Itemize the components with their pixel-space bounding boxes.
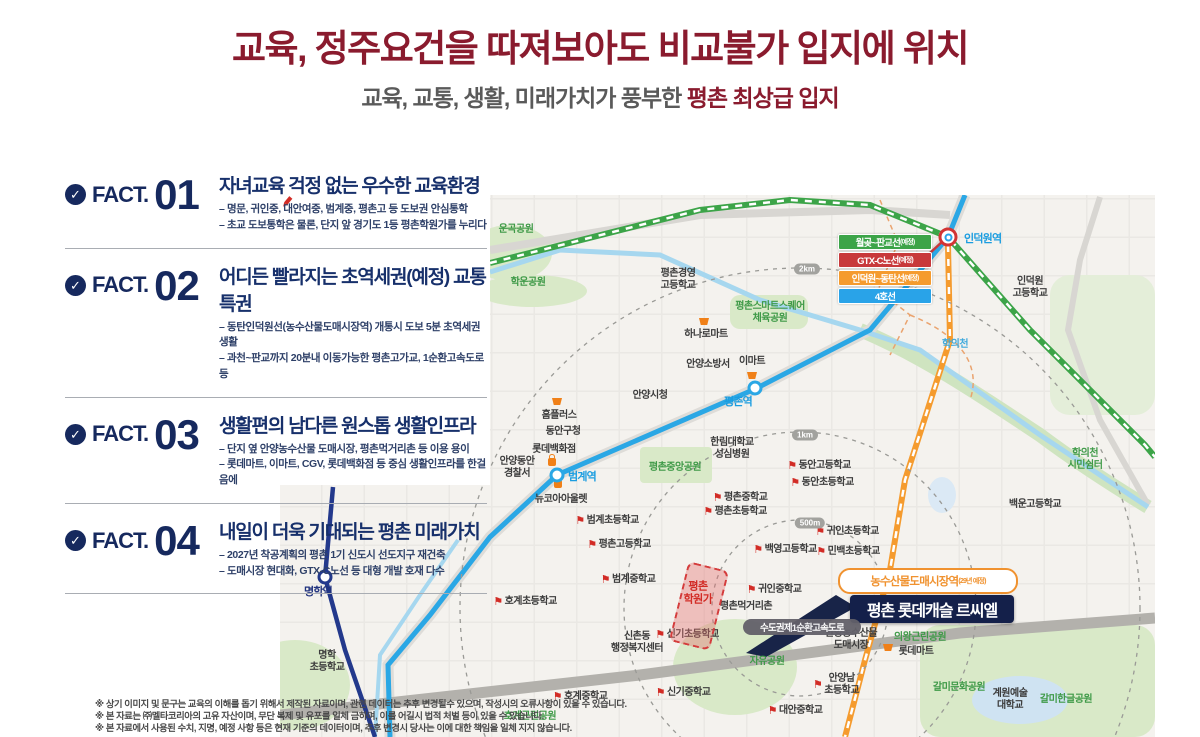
map-label-text: 자유공원 [750, 656, 785, 668]
fact-body-03: 생활편의 남다른 원스톱 생활인프라– 단지 옆 안양농수산물 도매시장, 평촌… [219, 411, 487, 489]
station-label: 인덕원역 [964, 230, 1001, 246]
map-label: 동안구청 [546, 426, 581, 438]
check-icon: ✓ [65, 275, 86, 296]
check-icon: ✓ [65, 184, 86, 205]
map-label-text: 신기중학교 [667, 687, 711, 699]
map-label-school: ⚑대안중학교 [768, 705, 823, 717]
fact-number: 01 [154, 177, 199, 213]
fact-heading-03: ✓FACT.03 [65, 411, 207, 453]
page-title: 교육, 정주요건을 따져보아도 비교불가 입지에 위치 [0, 28, 1200, 71]
fact-body-04: 내일이 더욱 기대되는 평촌 미래가치– 2027년 착공계획의 평촌 1기 신… [219, 517, 480, 580]
map-label-text: 안양시청 [633, 390, 668, 402]
disclaimer-block: ※ 상기 이미지 및 문구는 교육의 이해를 돕기 위해서 제작된 자료이며, … [95, 698, 627, 734]
legend-label: 4호선 [875, 289, 895, 303]
map-label: 이마트 [739, 356, 765, 368]
map-label-school: ⚑신기중학교 [656, 687, 711, 699]
legend-badge-3: 인덕원~동탄선(예정) [838, 270, 932, 286]
map-label: 안양소방서 [686, 359, 730, 371]
map-label: 운곡공원 [499, 224, 534, 236]
map-label: 학의천 시민쉼터 [1068, 448, 1103, 472]
school-flag-icon: ⚑ [747, 585, 756, 596]
fact-row-04: ✓FACT.04내일이 더욱 기대되는 평촌 미래가치– 2027년 착공계획의… [65, 504, 487, 595]
fact-title: 자녀교육 걱정 없는 우수한 교육환경 [219, 171, 487, 198]
school-flag-icon: ⚑ [493, 597, 502, 608]
school-flag-icon: ⚑ [713, 493, 722, 504]
school-flag-icon: ⚑ [656, 688, 665, 699]
map-label-text: 평촌중학교 [724, 492, 768, 504]
planned-station-name: 농수산물도매시장역 [870, 573, 958, 589]
map-label-school: ⚑귀인중학교 [747, 584, 802, 596]
disclaimer-line: ※ 상기 이미지 및 문구는 교육의 이해를 돕기 위해서 제작된 자료이며, … [95, 698, 627, 710]
fact-bullet: – 롯데마트, 이마트, CGV, 롯데백화점 등 중심 생활인프라를 한걸음에 [219, 457, 487, 489]
ring-badge-500m: 500m [795, 518, 825, 529]
map-label-school: ⚑민백초등학교 [816, 546, 880, 558]
map-label-school: ⚑동안초등학교 [790, 477, 854, 489]
school-flag-icon: ⚑ [768, 706, 777, 717]
map-label-text: 평촌먹거리촌 [720, 601, 772, 613]
map-label-text: 안양동안 경찰서 [500, 456, 535, 480]
fact-number: 03 [154, 417, 199, 453]
map-label-text: 동안초등학교 [802, 477, 854, 489]
map-label-text: 학의천 [942, 339, 968, 351]
fact-title: 어디든 빨라지는 초역세권(예정) 교통특권 [219, 262, 487, 316]
highway-badge: 수도권제1순환고속도로 [743, 619, 861, 635]
fact-word: FACT. [92, 182, 148, 208]
map-label-text: 동안구청 [546, 426, 581, 438]
map-label-text: 이마트 [739, 356, 765, 368]
map-label-text: 한림대학교 성심병원 [710, 437, 754, 461]
map-label: 계원예술 대학교 [993, 688, 1028, 712]
planned-station-note: (29년 예정) [958, 576, 985, 586]
fact-word: FACT. [92, 528, 148, 554]
fact-row-03: ✓FACT.03생활편의 남다른 원스톱 생활인프라– 단지 옆 안양농수산물 … [65, 398, 487, 504]
bag-icon [548, 458, 556, 466]
fact-title: 내일이 더욱 기대되는 평촌 미래가치 [219, 517, 480, 544]
fact-bullet: – 초교 도보통학은 물론, 단지 앞 경기도 1등 평촌학원가를 누리다 [219, 218, 487, 234]
school-flag-icon: ⚑ [813, 680, 822, 691]
map-label-school: ⚑백영고등학교 [753, 544, 817, 556]
fact-bullet: – 도매시장 현대화, GTX-C노선 등 대형 개발 호재 다수 [219, 564, 480, 580]
map-label-text: 귀인중학교 [758, 584, 802, 596]
map-label: 안양시청 [633, 390, 668, 402]
map-label-school: ⚑평촌고등학교 [587, 539, 651, 551]
map-label: 홈플러스 [542, 410, 577, 422]
subtitle-strong: 평촌 최상급 입지 [687, 85, 839, 111]
legend-badge-4: 4호선 [838, 288, 932, 304]
map-label-text: 평촌초등학교 [715, 506, 767, 518]
legend-label: GTX-C노선 [857, 253, 898, 267]
fact-heading-01: ✓FACT.01 [65, 171, 207, 213]
map-label-school: ⚑평촌중학교 [713, 492, 768, 504]
fact-number: 02 [154, 268, 199, 304]
legend-note: (예정) [899, 255, 913, 265]
fact-heading-02: ✓FACT.02 [65, 262, 207, 304]
school-flag-icon: ⚑ [703, 507, 712, 518]
map-label: 학운공원 [511, 277, 546, 289]
cart-icon [552, 398, 562, 405]
map-label-text: 홈플러스 [542, 410, 577, 422]
fact-bullet: – 명문, 귀인중, 대안여중, 범계중, 평촌고 등 도보권 안심통학 [219, 202, 487, 218]
cart-icon [883, 644, 893, 651]
fact-bullet: – 단지 옆 안양농수산물 도매시장, 평촌먹거리촌 등 이용 용이 [219, 442, 487, 458]
map-label-text: 명학 초등학교 [310, 650, 345, 674]
map-label: 백운고등학교 [1009, 499, 1061, 511]
map-label-text: 평촌고등학교 [599, 539, 651, 551]
map-label-text: 민백초등학교 [828, 546, 880, 558]
map-label-text: 평촌중앙공원 [649, 462, 701, 474]
fact-bullet: – 과천~판교까지 20분내 이동가능한 평촌고가교, 1순환고속도로 등 [219, 351, 487, 383]
fact-bullet: – 2027년 착공계획의 평촌 1기 신도시 선도지구 재건축 [219, 548, 480, 564]
rail-legend: 월곶~판교선(예정)GTX-C노선(예정)인덕원~동탄선(예정)4호선 [838, 234, 932, 304]
map-label-school: ⚑범계초등학교 [575, 515, 639, 527]
map-label-text: 범계중학교 [612, 574, 656, 586]
transfer-inner-ring [944, 233, 952, 241]
map-label: 한림대학교 성심병원 [710, 437, 754, 461]
map-label-text: 범계초등학교 [587, 515, 639, 527]
map-label: 갈미문화공원 [933, 682, 985, 694]
fact-number: 04 [154, 523, 199, 559]
map-label-text: 뉴코아아울렛 [535, 494, 587, 506]
fact-heading-04: ✓FACT.04 [65, 517, 207, 559]
map-label: 의왕근린공원 [894, 632, 946, 644]
academy-district-label: 평촌 학원가 [684, 580, 713, 605]
fact-body-02: 어디든 빨라지는 초역세권(예정) 교통특권– 동탄인덕원선(농수산물도매시장역… [219, 262, 487, 383]
map-label-text: 학운공원 [511, 277, 546, 289]
map-label: 롯데마트 [899, 646, 934, 658]
map-label: 평촌스마트스퀘어 체육공원 [735, 301, 805, 325]
school-flag-icon: ⚑ [787, 461, 796, 472]
map-label-school: ⚑안양남 초등학교 [813, 673, 859, 697]
map-label-text: 학의천 시민쉼터 [1068, 448, 1103, 472]
legend-badge-1: 월곶~판교선(예정) [838, 234, 932, 250]
ring-badge-2km: 2km [794, 264, 820, 275]
map-label-text: 평촌경영 고등학교 [661, 268, 696, 292]
map-label: 자유공원 [750, 656, 785, 668]
station-label: 범계역 [568, 468, 596, 484]
school-flag-icon: ⚑ [816, 547, 825, 558]
map-label-school: ⚑범계중학교 [601, 574, 656, 586]
map-label: 평촌먹거리촌 [720, 601, 772, 613]
subtitle-plain: 교육, 교통, 생활, 미래가치가 풍부한 [361, 85, 686, 111]
legend-label: 월곶~판교선 [856, 235, 900, 249]
school-flag-icon: ⚑ [655, 630, 664, 641]
page-header: 교육, 정주요건을 따져보아도 비교불가 입지에 위치 교육, 교통, 생활, … [0, 28, 1200, 113]
fact-list: ✓FACT.01자녀교육 걱정 없는 우수한 교육환경– 명문, 귀인중, 대안… [65, 158, 487, 594]
map-label-text: 대안중학교 [779, 705, 823, 717]
planned-station-badge: 농수산물도매시장역(29년 예정) [838, 568, 1018, 594]
map-label-school: ⚑호계초등학교 [493, 596, 557, 608]
ring-badge-1km: 1km [792, 430, 818, 441]
station-범계역 [550, 468, 565, 483]
school-flag-icon: ⚑ [575, 516, 584, 527]
map-label-text: 갈미한글공원 [1040, 694, 1092, 706]
fact-title: 생활편의 남다른 원스톱 생활인프라 [219, 411, 487, 438]
legend-badge-2: GTX-C노선(예정) [838, 252, 932, 268]
legend-note: (예정) [900, 237, 914, 247]
disclaimer-line: ※ 본 자료는 ㈜멜타코리아의 고유 자산이며, 무단 복제 및 유포를 일체 … [95, 710, 627, 722]
school-flag-icon: ⚑ [587, 540, 596, 551]
station-인덕원역 [939, 228, 958, 247]
map-label-text: 하나로마트 [684, 329, 728, 341]
station-label: 평촌역 [724, 393, 752, 409]
map-label: 갈미한글공원 [1040, 694, 1092, 706]
school-flag-icon: ⚑ [601, 575, 610, 586]
map-label-text: 의왕근린공원 [894, 632, 946, 644]
check-icon: ✓ [65, 530, 86, 551]
fact-row-02: ✓FACT.02어디든 빨라지는 초역세권(예정) 교통특권– 동탄인덕원선(농… [65, 249, 487, 398]
fact-word: FACT. [92, 272, 148, 298]
legend-label: 인덕원~동탄선 [852, 271, 904, 285]
fact-body-01: 자녀교육 걱정 없는 우수한 교육환경– 명문, 귀인중, 대안여중, 범계중,… [219, 171, 487, 234]
map-label: 하나로마트 [684, 329, 728, 341]
map-label: 안양동안 경찰서 [500, 456, 535, 480]
map-label: 학의천 [942, 339, 968, 351]
page-subtitle: 교육, 교통, 생활, 미래가치가 풍부한 평촌 최상급 입지 [0, 79, 1200, 113]
map-label-text: 롯데마트 [899, 646, 934, 658]
map-label-school: ⚑평촌초등학교 [703, 506, 767, 518]
cart-icon [699, 318, 709, 325]
map-label-text: 백영고등학교 [765, 544, 817, 556]
fact-row-01: ✓FACT.01자녀교육 걱정 없는 우수한 교육환경– 명문, 귀인중, 대안… [65, 158, 487, 249]
check-icon: ✓ [65, 424, 86, 445]
school-flag-icon: ⚑ [753, 545, 762, 556]
map-label-text: 동안고등학교 [799, 460, 851, 472]
map-label-text: 평촌스마트스퀘어 체육공원 [735, 301, 805, 325]
map-label-text: 귀인초등학교 [827, 526, 879, 538]
map-label: 평촌경영 고등학교 [661, 268, 696, 292]
map-label-school: ⚑귀인초등학교 [815, 526, 879, 538]
map-label: 뉴코아아울렛 [535, 494, 587, 506]
map-label-text: 안양소방서 [686, 359, 730, 371]
map-label: 인덕원 고등학교 [1013, 276, 1048, 300]
map-label-school: ⚑동안고등학교 [787, 460, 851, 472]
site-badge: 평촌 롯데캐슬 르씨엘 [850, 595, 1014, 623]
cart-icon [747, 372, 757, 379]
map-label-text: 갈미문화공원 [933, 682, 985, 694]
map-label-text: 계원예술 대학교 [993, 688, 1028, 712]
legend-note: (예정) [904, 273, 918, 283]
fact-word: FACT. [92, 421, 148, 447]
map-label-text: 호계초등학교 [505, 596, 557, 608]
school-flag-icon: ⚑ [790, 478, 799, 489]
map-label: 평촌중앙공원 [649, 462, 701, 474]
map-label-text: 인덕원 고등학교 [1013, 276, 1048, 300]
fact-bullet: – 동탄인덕원선(농수산물도매시장역) 개통시 도보 5분 초역세권 생활 [219, 320, 487, 352]
map-label-text: 운곡공원 [499, 224, 534, 236]
map-label-text: 안양남 초등학교 [824, 673, 859, 697]
map-label-text: 백운고등학교 [1009, 499, 1061, 511]
disclaimer-line: ※ 본 자료에서 사용된 수치, 지명, 예정 사항 등은 현재 기준의 데이터… [95, 722, 627, 734]
map-label: 명학 초등학교 [310, 650, 345, 674]
